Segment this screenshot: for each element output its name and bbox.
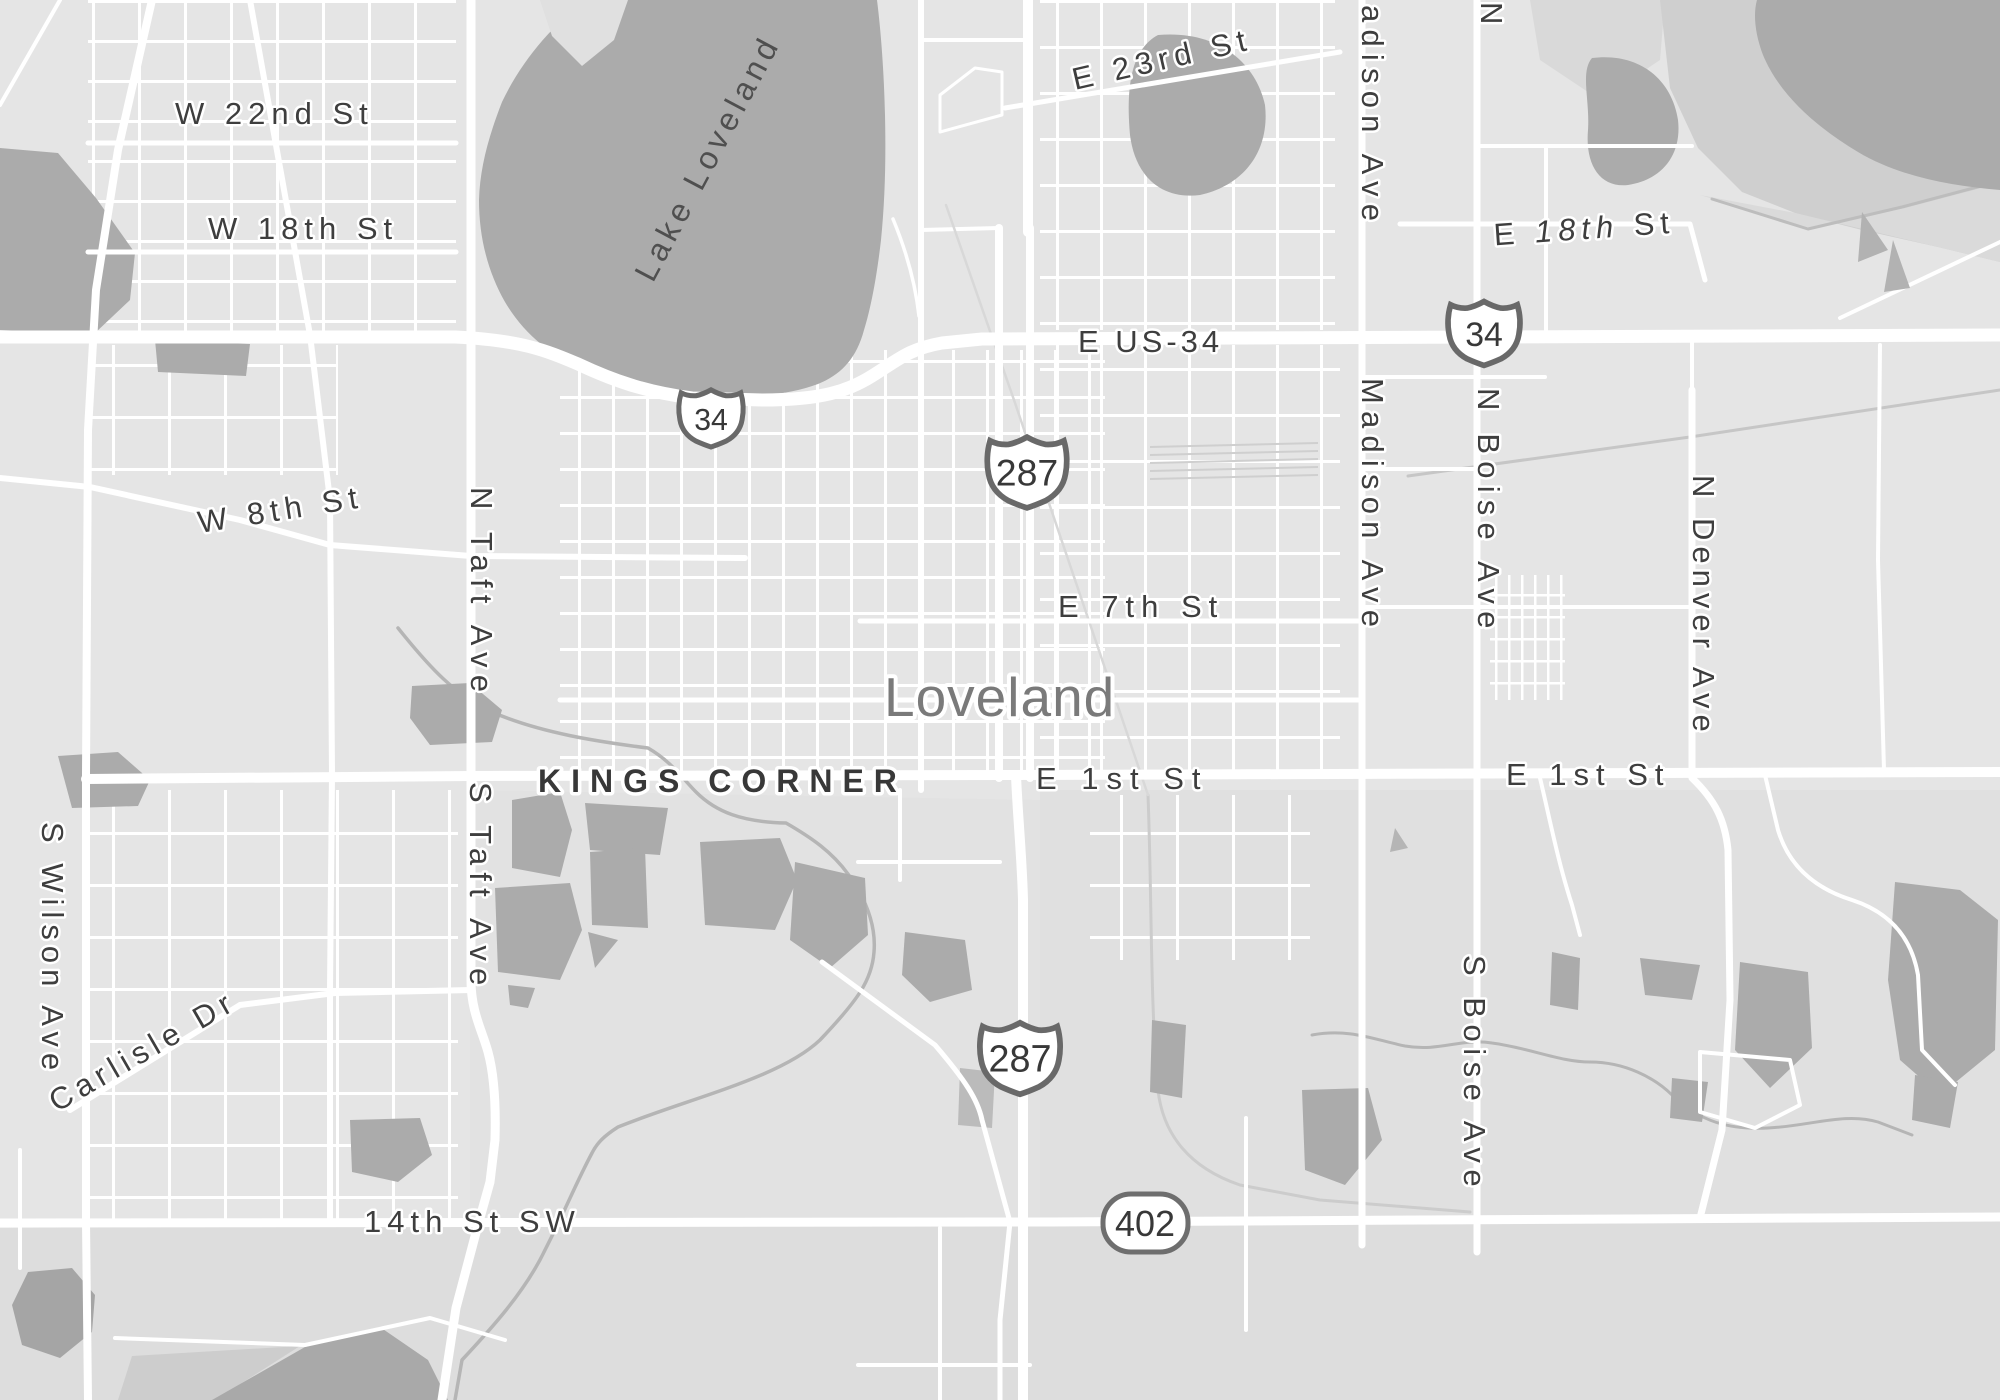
svg-text:N Boise Ave: N Boise Ave <box>1471 388 1506 636</box>
svg-text:S Wilson Ave: S Wilson Ave <box>35 822 70 1076</box>
svg-text:34: 34 <box>694 404 728 437</box>
svg-text:Madison Ave: Madison Ave <box>1355 0 1390 228</box>
svg-text:287: 287 <box>996 452 1058 494</box>
svg-text:E 1st St: E 1st St <box>1506 757 1671 792</box>
svg-text:E US-34: E US-34 <box>1078 324 1223 359</box>
svg-text:W 22nd St: W 22nd St <box>175 96 374 131</box>
svg-text:Loveland: Loveland <box>884 666 1115 728</box>
svg-text:Madison Ave: Madison Ave <box>1355 378 1390 634</box>
svg-text:E 1st St: E 1st St <box>1036 761 1209 796</box>
svg-text:N Denver Ave: N Denver Ave <box>1686 475 1721 738</box>
svg-text:N Taft Ave: N Taft Ave <box>464 487 499 699</box>
svg-text:S Taft Ave: S Taft Ave <box>463 782 498 992</box>
svg-text:W 18th St: W 18th St <box>208 211 398 246</box>
svg-text:S Boise Ave: S Boise Ave <box>1457 955 1492 1193</box>
svg-text:34: 34 <box>1465 316 1503 354</box>
svg-text:287: 287 <box>988 1039 1051 1081</box>
svg-text:14th St SW: 14th St SW <box>364 1204 581 1239</box>
svg-text:E 7th St: E 7th St <box>1058 589 1224 624</box>
svg-text:KINGS CORNER: KINGS CORNER <box>538 763 907 799</box>
svg-text:402: 402 <box>1115 1203 1175 1244</box>
svg-text:N: N <box>1474 2 1509 32</box>
